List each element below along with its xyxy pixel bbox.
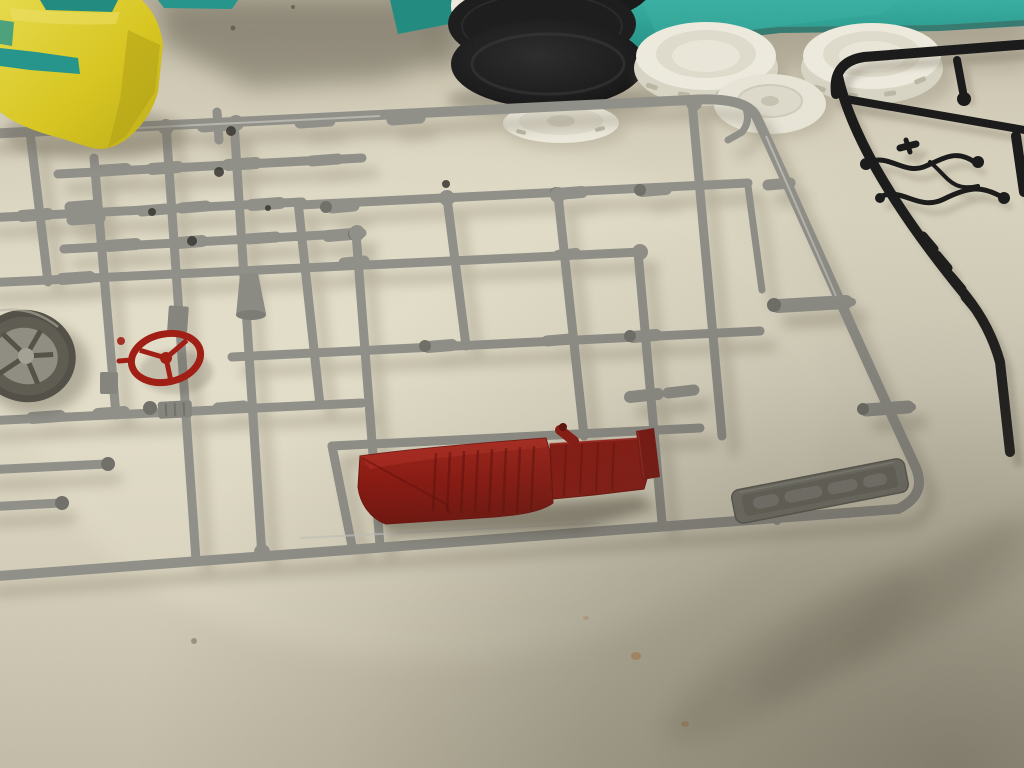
- photo-canvas: [0, 0, 1024, 768]
- film-grain-overlay: [0, 0, 1024, 768]
- photo-stage: [0, 0, 1024, 768]
